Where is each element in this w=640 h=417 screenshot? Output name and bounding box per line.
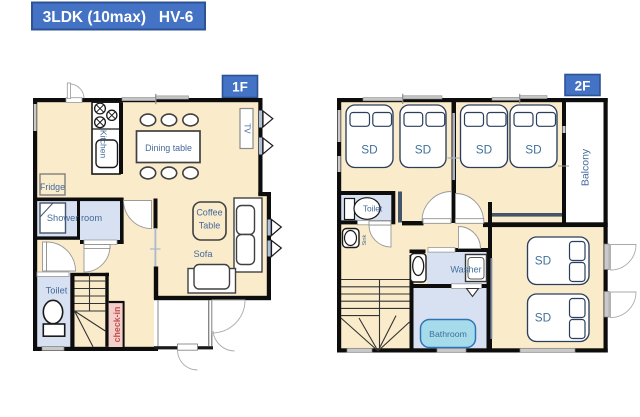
svg-text:SD: SD (525, 143, 541, 157)
svg-text:Shower room: Shower room (47, 213, 103, 223)
svg-text:Dining table: Dining table (145, 143, 192, 153)
svg-text:SD: SD (535, 311, 551, 325)
svg-text:TV: TV (242, 123, 251, 134)
svg-text:1F: 1F (232, 80, 248, 95)
svg-text:Coffee: Coffee (196, 208, 222, 218)
svg-text:3LDK (10max) HV-6: 3LDK (10max) HV-6 (43, 9, 194, 26)
svg-text:Balcony: Balcony (580, 148, 592, 186)
svg-text:Fridge: Fridge (40, 182, 65, 192)
svg-text:Toilet: Toilet (46, 286, 68, 296)
svg-text:Sofa: Sofa (193, 249, 213, 259)
svg-text:2F: 2F (575, 79, 591, 94)
svg-text:SD: SD (361, 143, 377, 157)
svg-text:SD: SD (415, 143, 431, 157)
svg-text:Bathroom: Bathroom (429, 329, 467, 339)
svg-text:Washer: Washer (450, 265, 481, 275)
svg-text:Kitchen: Kitchen (99, 130, 109, 159)
svg-text:SD: SD (476, 143, 492, 157)
svg-text:Table: Table (199, 221, 221, 231)
svg-text:Sink: Sink (362, 235, 368, 246)
svg-text:SD: SD (535, 254, 551, 268)
svg-text:Toilet: Toilet (363, 204, 383, 214)
svg-text:check-in: check-in (112, 307, 122, 343)
